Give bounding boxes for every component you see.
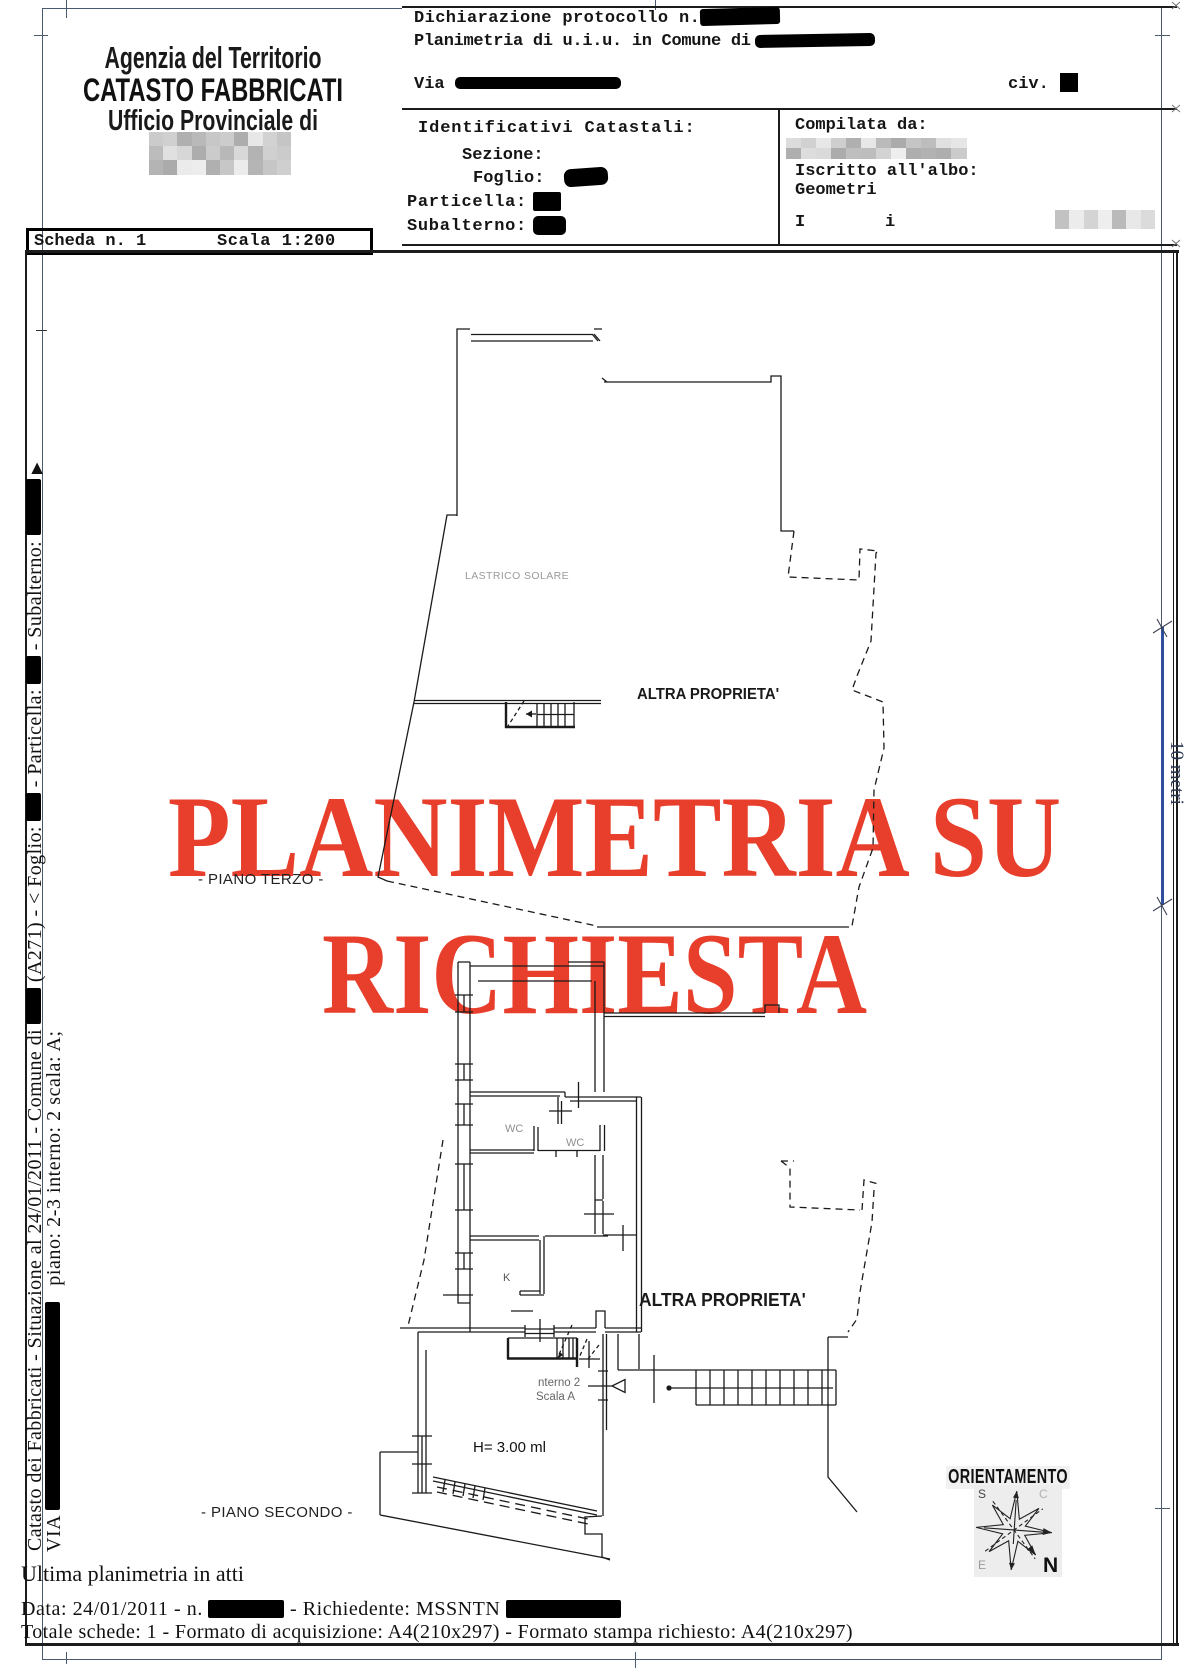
- svg-text:C: C: [1039, 1487, 1048, 1501]
- svg-text:N: N: [1043, 1554, 1058, 1577]
- svg-text:E: E: [978, 1558, 986, 1572]
- svg-text:S: S: [978, 1487, 986, 1501]
